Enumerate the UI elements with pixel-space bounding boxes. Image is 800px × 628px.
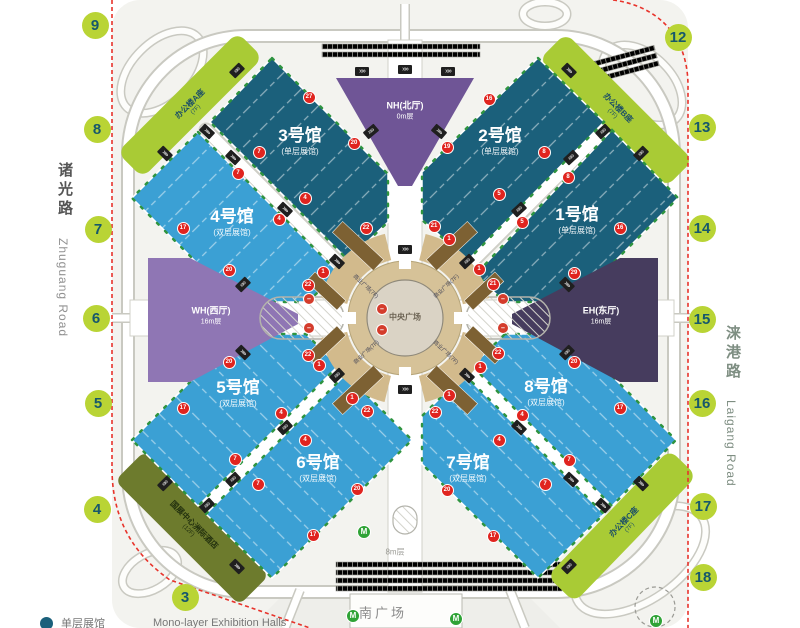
entrance-marker: 20 [568,356,581,369]
entrance-marker: 20 [351,483,364,496]
road-name-laigang-en: Laigang Road [724,400,738,487]
entrance-marker: 7 [539,478,552,491]
road-name-zhuguang-cn: 诸光路 [54,162,75,219]
metro-station-icon: M [357,525,371,539]
entrance-marker: 1 [473,263,486,276]
gate-17: 17 [690,493,717,520]
entrance-marker: 4 [516,409,529,422]
bridge-gate-icon: »» [431,123,448,139]
bridge-gate-icon: »» [595,123,611,139]
entrance-marker: 17 [307,529,320,542]
hall-8-type: (双层展馆) [524,397,567,408]
entrance-marker: 17 [177,222,190,235]
legend-swatch-single-hall [40,617,53,628]
entrance-marker: 8 [562,171,575,184]
entrance-marker: 1 [443,233,456,246]
bridge-gate-icon: »» [511,201,527,217]
entrance-marker: 22 [361,405,374,418]
entrance-marker: 1 [474,361,487,374]
bridge-gate-icon: »» [199,123,215,139]
hall-7-name: 7号馆 [446,448,489,473]
bridge-gate-icon: »» [561,558,577,574]
hall-2-type: (单层展馆) [478,146,521,157]
legend-label-cn: 单层展馆 [61,615,105,628]
legend-label-en: Mono-layer Exhibition Halls [153,617,286,628]
hall-1-type: (单层展馆) [555,225,598,236]
entrance-marker: 4 [493,434,506,447]
hall-6-name: 6号馆 [296,448,339,473]
entrance-marker: 29 [568,267,581,280]
no-entry-icon: – [376,324,388,336]
gate-7: 7 [85,216,112,243]
entrance-marker: 27 [303,91,316,104]
hall-3-name: 3号馆 [278,121,321,146]
hall-1-label: 1号馆(单层展馆) [555,200,598,236]
entrance-marker: 7 [563,454,576,467]
hall-1-name: 1号馆 [555,200,598,225]
venue-map: 诸光路 Zhuguang Road 涞港路 Laigang Road 中央广场 … [0,0,800,628]
entrance-marker: 4 [299,434,312,447]
entrance-marker: 16 [614,222,627,235]
north-lobby-level: 0m层 [387,112,424,122]
entrance-marker: 22 [302,349,315,362]
hall-2-name: 2号馆 [478,121,521,146]
east-lobby-level: 16m层 [583,317,620,327]
office-a-label: 办公楼A座(7F) [173,87,212,126]
no-entry-icon: – [303,293,315,305]
bridge-gate-icon: »» [561,62,577,78]
north-lobby-label: NH(北厅)0m层 [387,99,424,122]
gate-14: 14 [689,215,716,242]
central-plaza-label: 中央广场 [389,312,421,323]
hall-4-name: 4号馆 [210,202,253,227]
road-name-zhuguang-en: Zhuguang Road [56,238,70,337]
entrance-marker: 20 [348,137,361,150]
hall-8-label: 8号馆(双层展馆) [524,372,567,408]
entrance-marker: 17 [487,530,500,543]
entrance-marker: 5 [516,216,529,229]
bridge-gate-icon: »» [633,475,649,491]
hall-7-label: 7号馆(双层展馆) [446,448,489,484]
gate-6: 6 [83,305,110,332]
gate-16: 16 [689,390,716,417]
bridge-gate-icon: »» [441,67,455,76]
bridge-gate-icon: »» [595,497,611,513]
bridge-gate-icon: »» [563,149,579,165]
commercial-plaza-label: 商业广场(7F) [352,272,381,300]
west-lobby-label: WH(西厅)16m层 [192,304,231,327]
entrance-marker: 5 [493,188,506,201]
no-entry-icon: – [376,303,388,315]
bridge-gate-icon: »» [235,344,251,360]
entrance-marker: 7 [253,146,266,159]
entrance-marker: 19 [441,141,454,154]
bridge-gate-icon: »» [157,475,173,491]
no-entry-icon: – [303,322,315,334]
entrance-marker: 22 [302,279,315,292]
entrance-marker: 20 [223,264,236,277]
south-plaza-label: 南广场 [359,603,407,622]
gate-5: 5 [85,390,112,417]
bridge-gate-icon: »» [277,419,293,435]
hall-7-type: (双层展馆) [446,473,489,484]
office-b-label: 办公楼B座(7F) [597,91,636,130]
hall-8-name: 8号馆 [524,372,567,397]
entrance-marker: 1 [346,392,359,405]
bridge-gate-icon: »» [398,245,412,254]
entrance-marker: 1 [313,359,326,372]
hall-4-type: (双层展馆) [210,227,253,238]
legend-row: 单层展馆 Mono-layer Exhibition Halls [40,615,286,628]
entrance-marker: 22 [360,222,373,235]
office-c-label: 办公楼C座(7F) [607,505,645,544]
bridge-gate-icon: »» [459,367,475,383]
bridge-gate-icon: »» [398,65,412,74]
bridge-gate-icon: »» [199,497,215,513]
gate-3: 3 [172,584,199,611]
bridge-gate-icon: »» [355,67,369,76]
metro-station-icon: M [649,614,663,628]
bridge-gate-icon: »» [633,145,649,161]
hall-3-label: 3号馆(单层展馆) [278,121,321,157]
map-overlay: 诸光路 Zhuguang Road 涞港路 Laigang Road 中央广场 … [0,0,800,628]
hall-5-type: (双层展馆) [216,398,259,409]
east-lobby-label: EH(东厅)16m层 [583,304,620,327]
hall-5-name: 5号馆 [216,373,259,398]
bridge-gate-icon: »» [329,367,345,383]
bridge-gate-icon: »» [157,145,173,161]
gate-8: 8 [84,116,111,143]
west-lobby-level: 16m层 [192,317,231,327]
entrance-marker: 1 [443,389,456,402]
commercial-plaza-label: 商业广场(7F) [352,338,381,366]
bridge-gate-icon: »» [225,471,241,487]
hall-4-label: 4号馆(双层展馆) [210,202,253,238]
entrance-marker: 1 [317,266,330,279]
entrance-marker: 17 [614,402,627,415]
bridge-gate-icon: »» [363,123,380,139]
entrance-marker: 22 [429,406,442,419]
entrance-marker: 4 [275,407,288,420]
entrance-marker: 22 [492,347,505,360]
gate-4: 4 [84,496,111,523]
hall-6-type: (双层展馆) [296,473,339,484]
hall-6-label: 6号馆(双层展馆) [296,448,339,484]
bridge-gate-icon: »» [229,62,245,78]
road-name-laigang-cn: 涞港路 [722,325,743,382]
entrance-marker: 20 [441,484,454,497]
metro-station-icon: M [346,609,360,623]
bridge-gate-icon: »» [563,471,579,487]
bridge-gate-icon: »» [398,385,412,394]
east-lobby-name: EH(东厅) [583,304,620,317]
entrance-marker: 7 [252,478,265,491]
west-lobby-name: WH(西厅) [192,304,231,317]
south-level-label: 8m层 [385,547,404,558]
entrance-marker: 21 [487,278,500,291]
commercial-plaza-label: 商业广场(7F) [432,338,461,366]
commercial-plaza-label: 商业广场(7F) [432,272,461,300]
metro-station-icon: M [449,612,463,626]
gate-15: 15 [689,306,716,333]
gate-13: 13 [689,114,716,141]
hall-5-label: 5号馆(双层展馆) [216,373,259,409]
entrance-marker: 21 [428,220,441,233]
bridge-gate-icon: »» [235,276,251,292]
bridge-gate-icon: »» [329,253,345,269]
entrance-marker: 4 [273,213,286,226]
entrance-marker: 17 [177,402,190,415]
hall-2-label: 2号馆(单层展馆) [478,121,521,157]
no-entry-icon: – [497,322,509,334]
entrance-marker: 7 [229,453,242,466]
gate-9: 9 [82,12,109,39]
entrance-marker: 8 [538,146,551,159]
hall-3-type: (单层展馆) [278,146,321,157]
entrance-marker: 16 [483,93,496,106]
gate-18: 18 [690,564,717,591]
entrance-marker: 20 [223,356,236,369]
north-lobby-name: NH(北厅) [387,99,424,112]
entrance-marker: 4 [299,192,312,205]
no-entry-icon: – [497,293,509,305]
entrance-marker: 7 [232,167,245,180]
gate-12: 12 [665,24,692,51]
bridge-gate-icon: »» [229,558,245,574]
bridge-gate-icon: »» [225,149,241,165]
